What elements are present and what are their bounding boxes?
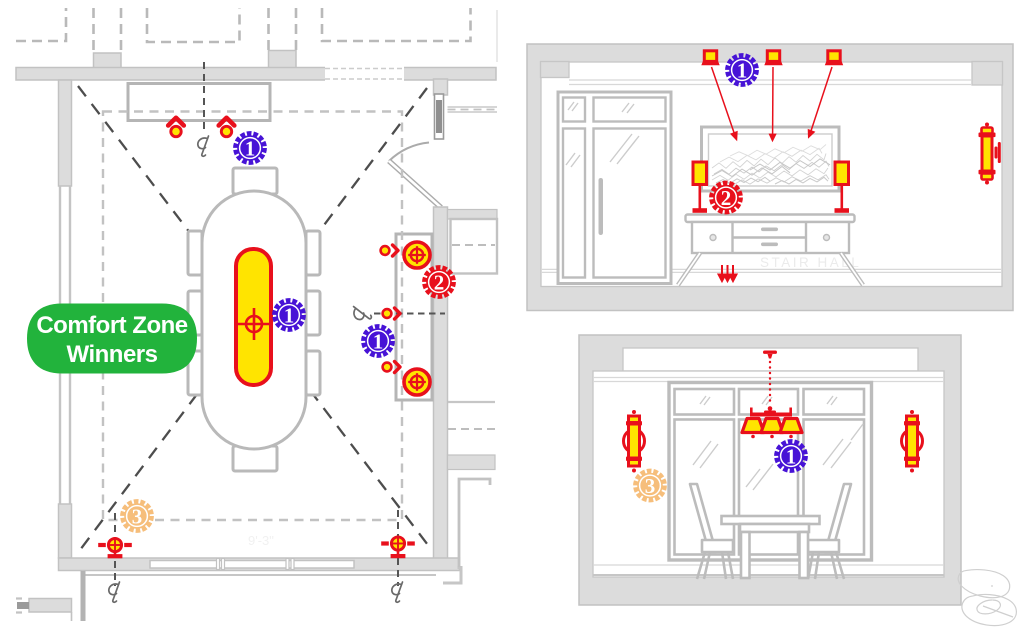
- svg-text:1: 1: [245, 136, 256, 160]
- svg-text:1: 1: [786, 444, 797, 468]
- svg-text:1: 1: [737, 58, 748, 82]
- svg-text:3: 3: [645, 474, 656, 498]
- svg-text:1: 1: [284, 303, 295, 327]
- svg-text:1: 1: [373, 329, 384, 353]
- svg-text:Comfort Zone: Comfort Zone: [36, 312, 187, 339]
- svg-text:9'-3": 9'-3": [248, 533, 274, 548]
- svg-text:2: 2: [721, 186, 732, 210]
- svg-text:Winners: Winners: [67, 341, 158, 368]
- svg-text:3: 3: [132, 504, 143, 528]
- svg-text:2: 2: [434, 270, 445, 294]
